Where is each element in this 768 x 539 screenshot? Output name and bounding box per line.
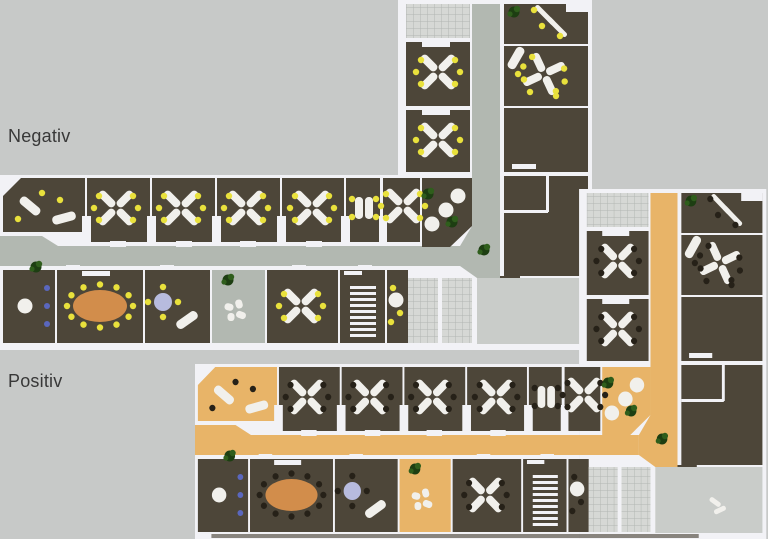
corridor — [650, 193, 677, 417]
room — [681, 297, 762, 361]
wall-partition — [212, 216, 221, 242]
room — [587, 193, 649, 227]
wall-partition — [66, 265, 80, 270]
wall-partition — [546, 176, 549, 212]
room — [504, 108, 588, 172]
stairs — [533, 475, 558, 526]
round-table — [389, 293, 404, 308]
wall-partition — [566, 2, 588, 12]
room — [589, 467, 618, 532]
wall-partition — [274, 405, 283, 431]
plan-label-negativ: Negativ — [8, 126, 70, 147]
room — [477, 278, 588, 344]
stairs — [350, 286, 376, 337]
corridor — [472, 4, 500, 228]
wall-partition — [722, 365, 725, 401]
sideboard — [512, 164, 536, 169]
round-table — [212, 488, 226, 503]
room — [655, 467, 762, 533]
round-table — [451, 189, 466, 204]
wall-partition — [259, 454, 273, 459]
room — [529, 367, 562, 431]
wall-partition — [349, 454, 363, 459]
wall-partition — [681, 399, 723, 402]
sideboard — [274, 460, 301, 465]
wall-partition — [358, 265, 372, 270]
room — [145, 270, 210, 343]
room — [406, 4, 470, 38]
wall-partition — [301, 430, 316, 436]
wall-partition — [602, 231, 629, 236]
wall-partition — [741, 191, 762, 201]
wall-partition — [490, 430, 505, 436]
wall-partition — [147, 216, 156, 242]
round-table — [425, 217, 440, 232]
wall-partition — [477, 454, 491, 459]
wall-partition — [160, 265, 174, 270]
wall-partition — [504, 210, 548, 213]
room — [3, 178, 85, 232]
plan-label-positiv: Positiv — [8, 371, 62, 392]
round-table — [570, 482, 584, 497]
wall-partition — [540, 454, 554, 459]
wall-partition — [365, 430, 380, 436]
wall-partition — [422, 42, 450, 47]
sideboard — [689, 353, 712, 358]
screenshot-root: Negativ Positiv — [0, 0, 768, 539]
wall-partition — [344, 271, 362, 275]
building-shadow — [211, 534, 698, 538]
wall-partition — [400, 405, 409, 431]
room — [442, 278, 472, 343]
wall-partition — [306, 241, 322, 247]
room — [408, 278, 438, 343]
wall-partition — [341, 216, 350, 242]
round-table — [618, 392, 632, 407]
room — [622, 467, 651, 532]
wall-partition — [277, 216, 286, 242]
room — [198, 367, 277, 421]
wall-partition — [337, 405, 346, 431]
wall-partition — [422, 110, 450, 115]
wall-partition — [462, 405, 471, 431]
round-table — [439, 203, 454, 218]
wall-partition — [602, 299, 629, 304]
round-table — [630, 378, 644, 393]
wall-partition — [240, 241, 256, 247]
wall-partition — [292, 265, 306, 270]
wall-partition — [110, 241, 126, 247]
room — [335, 459, 398, 532]
wall-partition — [524, 405, 533, 431]
wall-partition — [176, 241, 192, 247]
floor-plan-canvas — [0, 0, 768, 539]
round-table — [605, 406, 619, 421]
sideboard — [82, 271, 110, 276]
wall-partition — [527, 460, 544, 464]
round-table — [18, 299, 33, 314]
floor-plan-negativ — [0, 0, 592, 350]
wall-partition — [82, 216, 91, 242]
wall-partition — [427, 430, 442, 436]
